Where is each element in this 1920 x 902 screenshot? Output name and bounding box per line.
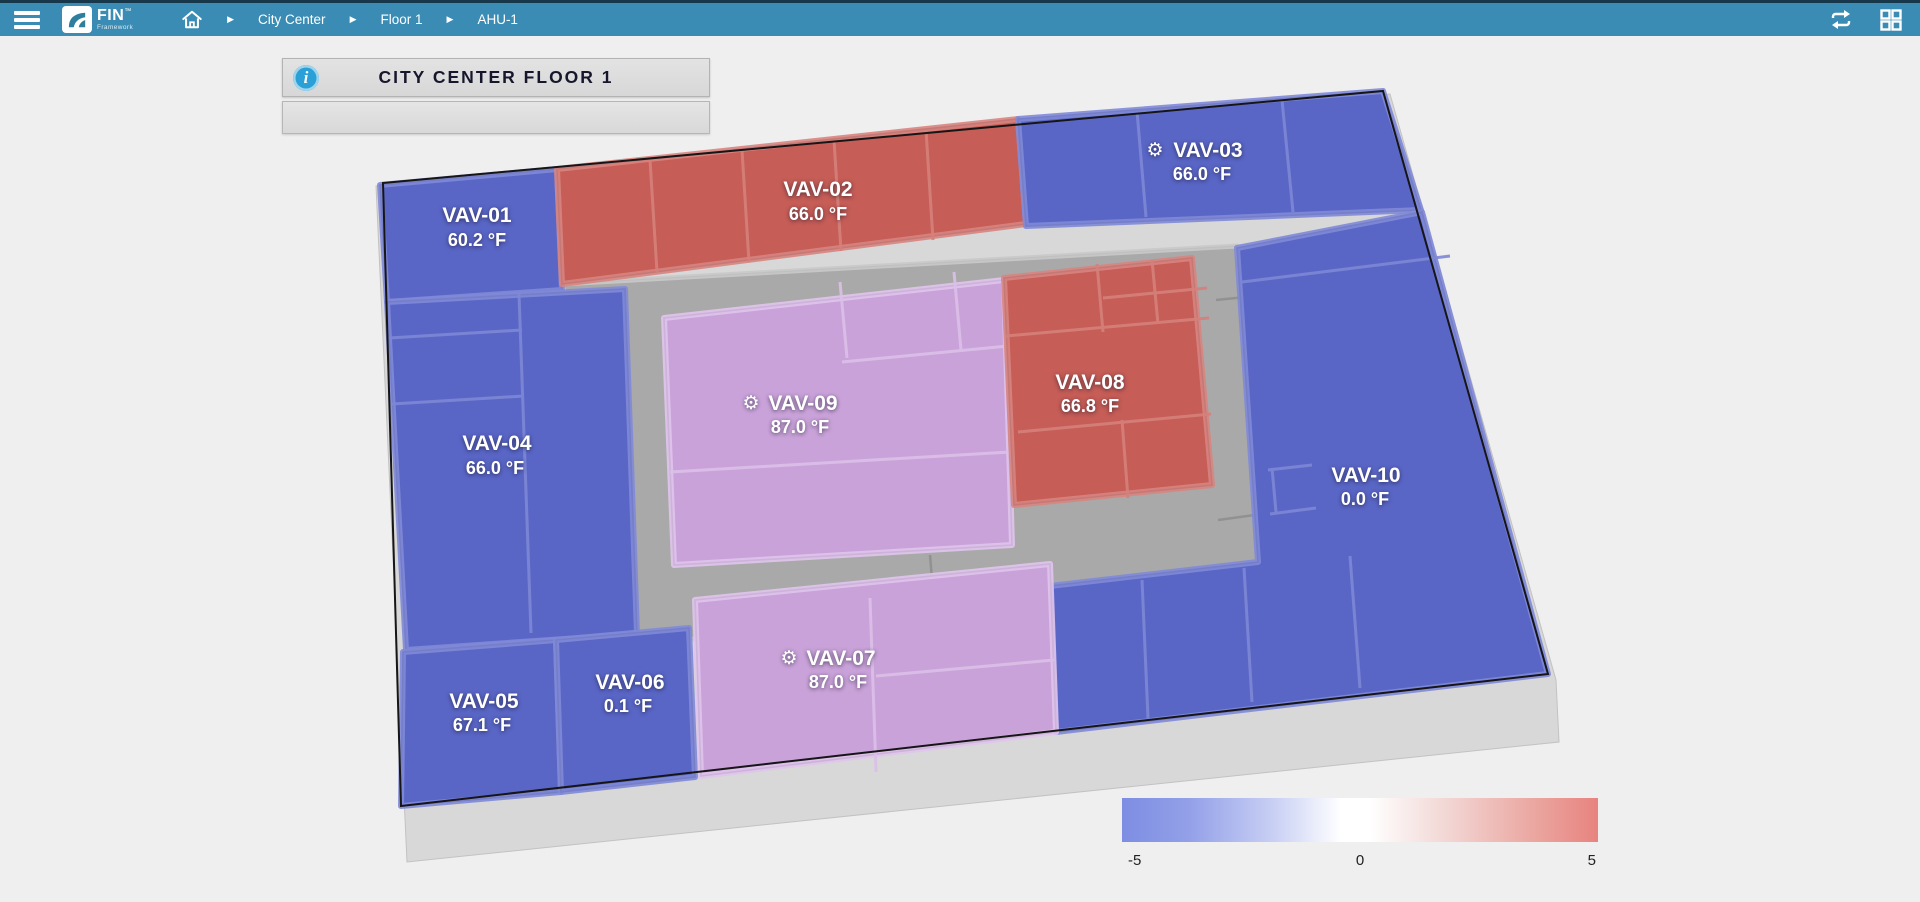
vav-08-temp: 66.8 °F bbox=[1061, 396, 1119, 416]
zone-vav-09[interactable] bbox=[664, 272, 1012, 565]
vav-07-temp: 87.0 °F bbox=[809, 672, 867, 692]
breadcrumb-ahu-1[interactable]: AHU-1 bbox=[477, 12, 518, 27]
vav-05-temp: 67.1 °F bbox=[453, 715, 511, 735]
brand-trademark: ™ bbox=[124, 8, 131, 15]
vav-09-gear-icon[interactable]: ⚙ bbox=[742, 393, 759, 414]
dashboard-grid-icon[interactable] bbox=[1880, 9, 1902, 31]
vav-09-temp: 87.0 °F bbox=[771, 417, 829, 437]
refresh-loop-icon[interactable] bbox=[1828, 9, 1854, 31]
vav-10-temp: 0.0 °F bbox=[1341, 489, 1389, 509]
vav-06-temp: 0.1 °F bbox=[604, 696, 652, 716]
vav-08-label: VAV-08 bbox=[1055, 371, 1125, 394]
vav-01-temp: 60.2 °F bbox=[448, 230, 506, 250]
brand-name: FIN bbox=[97, 7, 124, 24]
fin-sail-icon bbox=[66, 10, 88, 30]
fin-logo-text: FIN™ Framework bbox=[97, 8, 133, 32]
fin-framework-logo[interactable]: FIN™ Framework bbox=[62, 6, 133, 33]
breadcrumb-separator-icon: ▶ bbox=[350, 14, 357, 25]
vav-07-gear-icon[interactable]: ⚙ bbox=[780, 648, 797, 669]
floorplan-3d-view[interactable]: VAV-01 60.2 °F VAV-02 66.0 °F ⚙ VAV-03 6… bbox=[0, 0, 1920, 902]
vav-03-temp: 66.0 °F bbox=[1173, 164, 1231, 184]
vav-02-label: VAV-02 bbox=[783, 178, 852, 201]
breadcrumb-floor-1[interactable]: Floor 1 bbox=[380, 12, 422, 27]
info-icon[interactable]: i bbox=[293, 65, 319, 91]
vav-09-label: VAV-09 bbox=[768, 392, 837, 415]
legend-labels: -5 0 5 bbox=[1122, 852, 1598, 878]
vav-04-label: VAV-04 bbox=[462, 432, 532, 455]
vav-06-label: VAV-06 bbox=[595, 671, 664, 694]
vav-03-gear-icon[interactable]: ⚙ bbox=[1146, 140, 1163, 161]
fin-logo-mark-icon bbox=[62, 6, 92, 33]
brand-subtitle: Framework bbox=[97, 25, 133, 32]
legend-min-label: -5 bbox=[1128, 852, 1141, 869]
legend-mid-label: 0 bbox=[1356, 852, 1364, 869]
home-icon[interactable] bbox=[181, 9, 203, 30]
page-title: CITY CENTER FLOOR 1 bbox=[319, 67, 673, 88]
vav-05-label: VAV-05 bbox=[449, 690, 519, 713]
hamburger-menu-icon[interactable] bbox=[14, 11, 40, 29]
vav-07-label: VAV-07 bbox=[806, 647, 875, 670]
vav-03-label: VAV-03 bbox=[1173, 139, 1242, 162]
temperature-legend: -5 0 5 bbox=[1122, 798, 1598, 878]
vav-10-label: VAV-10 bbox=[1331, 464, 1400, 487]
vav-02-temp: 66.0 °F bbox=[789, 204, 847, 224]
breadcrumb-city-center[interactable]: City Center bbox=[258, 12, 326, 27]
legend-gradient-bar bbox=[1122, 798, 1598, 842]
vav-01-label: VAV-01 bbox=[442, 204, 512, 227]
floor-title-panel: i CITY CENTER FLOOR 1 bbox=[282, 58, 710, 97]
breadcrumb-separator-icon: ▶ bbox=[227, 14, 234, 25]
secondary-panel bbox=[282, 101, 710, 134]
legend-max-label: 5 bbox=[1588, 852, 1596, 869]
vav-04-temp: 66.0 °F bbox=[466, 458, 524, 478]
breadcrumb-separator-icon: ▶ bbox=[447, 14, 454, 25]
top-navigation-bar: FIN™ Framework ▶ City Center ▶ Floor 1 ▶… bbox=[0, 0, 1920, 36]
